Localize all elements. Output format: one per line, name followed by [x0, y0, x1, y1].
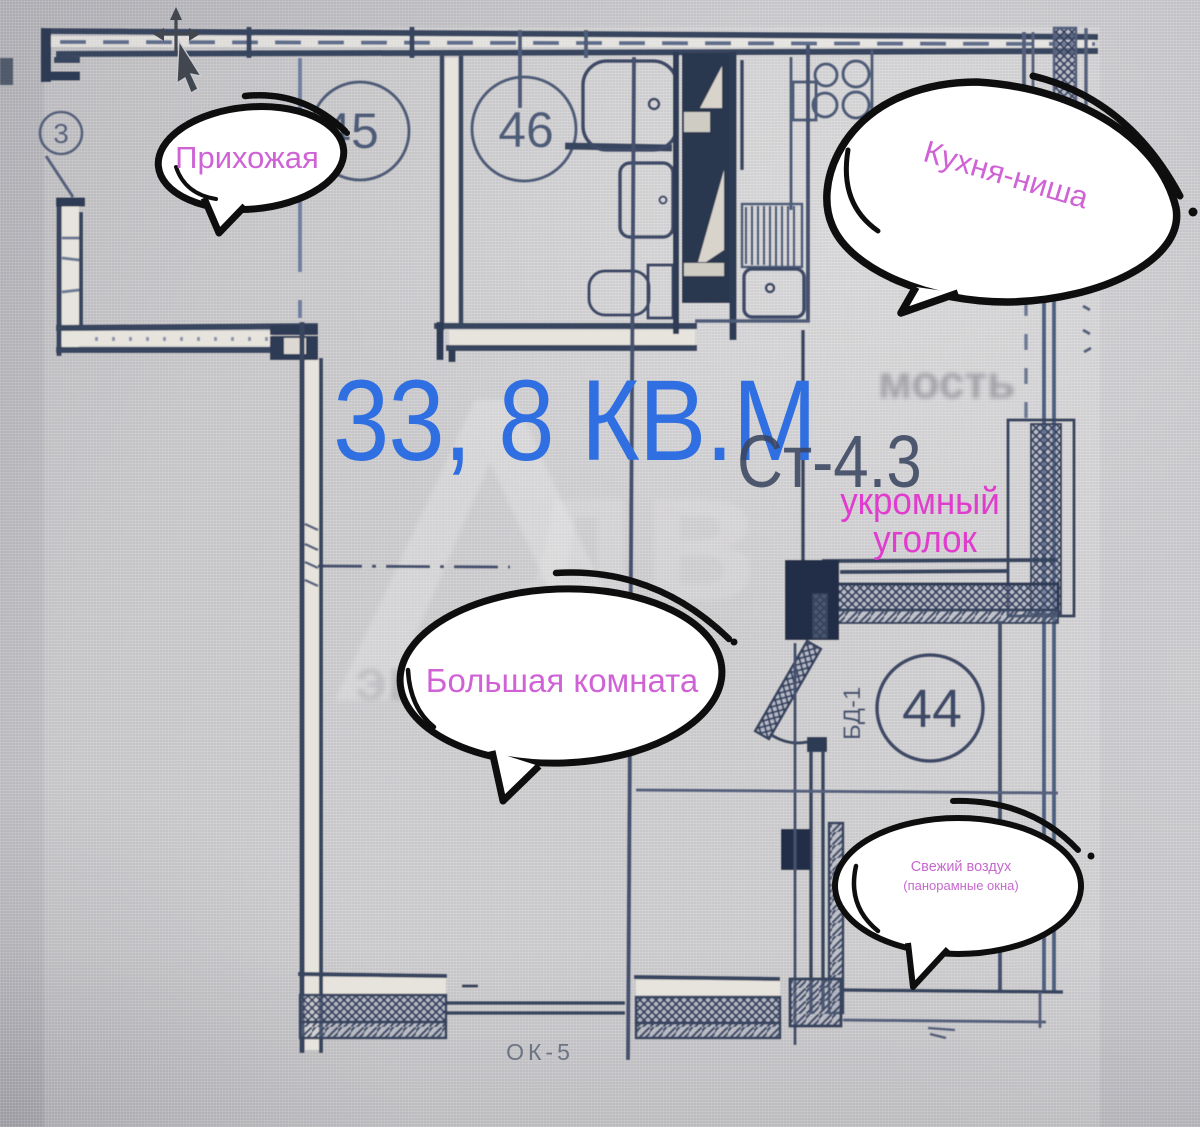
svg-text:44: 44 — [902, 679, 962, 739]
svg-text:БД-1: БД-1 — [839, 687, 866, 740]
svg-text:уголок: уголок — [873, 518, 978, 561]
svg-text:Прихожая: Прихожая — [175, 140, 319, 175]
svg-text:(панорамные окна): (панорамные окна) — [903, 878, 1018, 893]
svg-text:3: 3 — [53, 118, 69, 149]
svg-text:ОК-5: ОК-5 — [506, 1039, 574, 1065]
svg-text:Большая комната: Большая комната — [426, 662, 699, 699]
svg-text:Свежий воздух: Свежий воздух — [911, 859, 1012, 875]
svg-text:укромный: укромный — [840, 480, 1000, 523]
svg-text:46: 46 — [498, 102, 554, 158]
